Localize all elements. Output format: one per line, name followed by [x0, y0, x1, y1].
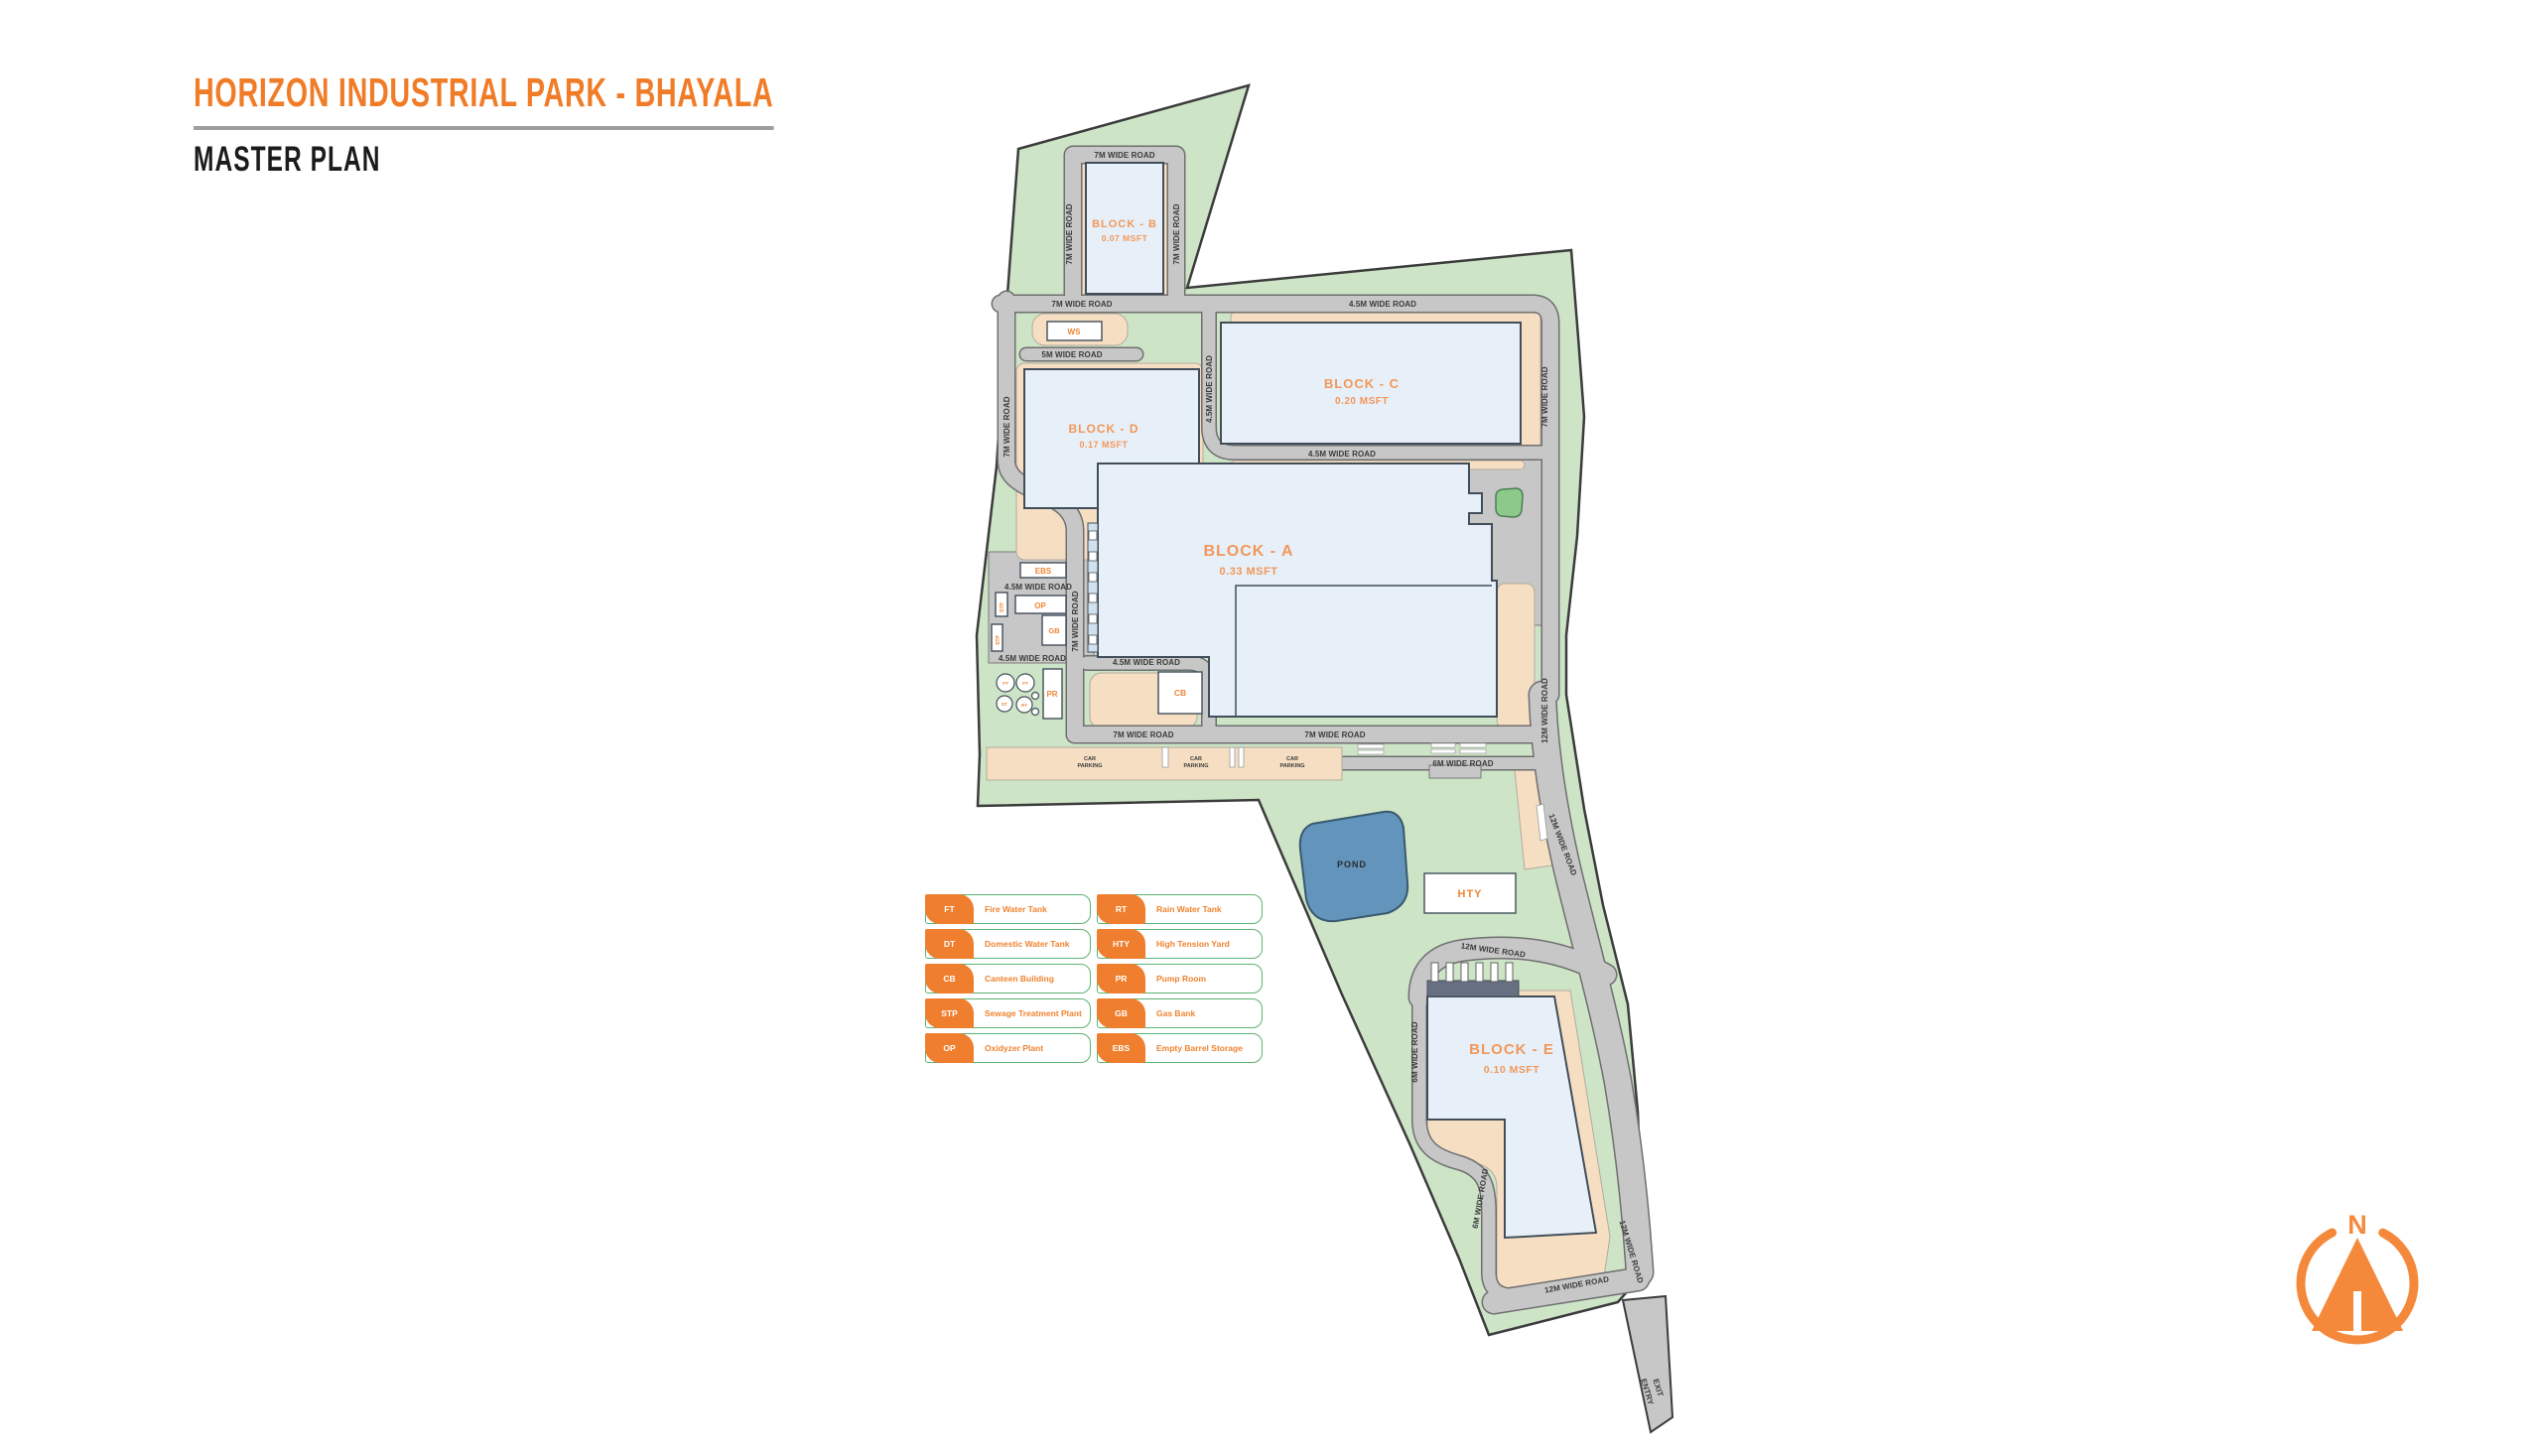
block-c-name: BLOCK - C [1324, 376, 1400, 391]
road-label: 5M WIDE ROAD [1041, 350, 1102, 359]
site-plan-map: BLOCK - A 0.33 MSFT BLOCK - B 0.07 MSFT … [0, 0, 2541, 1456]
small-tank-1 [1032, 693, 1039, 700]
dt-label: DT [1002, 702, 1007, 707]
compass-north-label: N [2347, 1210, 2367, 1240]
road-label: 7M WIDE ROAD [1540, 366, 1549, 427]
road-label: 7M WIDE ROAD [1304, 730, 1365, 739]
road-label: 7M WIDE ROAD [1172, 203, 1181, 264]
north-arrow-icon [2312, 1238, 2403, 1331]
hty-label: HTY [1458, 888, 1483, 900]
small-tank-2 [1032, 709, 1039, 716]
block-a-dock-strip [1088, 523, 1098, 652]
road-label: 7M WIDE ROAD [1113, 730, 1173, 739]
gb-label: GB [1048, 626, 1060, 635]
op-label: OP [1034, 601, 1046, 610]
car-parking-label: CAR [1190, 756, 1202, 762]
road-label: 4.5M WIDE ROAD [1004, 583, 1072, 592]
car-parking-label: PARKING [1280, 763, 1305, 769]
ws-label: WS [1068, 328, 1082, 336]
road-label: 12M WIDE ROAD [1540, 678, 1549, 743]
road-label: 7M WIDE ROAD [1051, 300, 1112, 309]
ft-label-1: FT [1003, 681, 1008, 686]
car-parking-label: CAR [1286, 756, 1298, 762]
road-label: 6M WIDE ROAD [1432, 759, 1493, 768]
ft-label-2: FT [1022, 681, 1028, 686]
block-b-name: BLOCK - B [1092, 218, 1157, 230]
block-c-area: 0.20 MSFT [1335, 396, 1389, 407]
stp-label-1: STP [1000, 601, 1005, 611]
road-label: 4.5M WIDE ROAD [1205, 355, 1214, 423]
road-label: 4.5M WIDE ROAD [1308, 450, 1376, 459]
car-parking-label: PARKING [1184, 763, 1209, 769]
stp-label-2: STP [996, 634, 1002, 644]
block-d-name: BLOCK - D [1069, 422, 1139, 436]
block-a-name: BLOCK - A [1203, 543, 1293, 560]
block-d-area: 0.17 MSFT [1079, 440, 1128, 450]
master-plan-page: HORIZON INDUSTRIAL PARK - BHAYALA MASTER… [0, 0, 2541, 1456]
block-b-area: 0.07 MSFT [1102, 233, 1148, 243]
landscape-patch [1496, 488, 1523, 517]
road-label: 7M WIDE ROAD [1094, 151, 1154, 160]
north-compass: N [2301, 1210, 2414, 1340]
entry-road-tail [1623, 1296, 1672, 1432]
road-label: 7M WIDE ROAD [1065, 203, 1074, 264]
block-e-area: 0.10 MSFT [1484, 1064, 1540, 1076]
pr-label: PR [1046, 690, 1057, 699]
road-label: 4.5M WIDE ROAD [1349, 300, 1416, 309]
road-label: 7M WIDE ROAD [1071, 591, 1080, 651]
block-e-name: BLOCK - E [1469, 1041, 1554, 1058]
road-label: 7M WIDE ROAD [1003, 396, 1011, 457]
pond-label: POND [1337, 860, 1367, 869]
block-a-area: 0.33 MSFT [1220, 566, 1278, 578]
cb-label: CB [1174, 688, 1186, 698]
block-e-dock-band [1427, 981, 1519, 996]
car-parking-label: PARKING [1078, 763, 1103, 769]
road-label: 4.5M WIDE ROAD [999, 654, 1066, 663]
ebs-label: EBS [1035, 567, 1052, 576]
road-label: 4.5M WIDE ROAD [1113, 658, 1180, 667]
rt-label: RT [1021, 703, 1027, 708]
car-parking-label: CAR [1084, 756, 1096, 762]
road-label: 6M WIDE ROAD [1410, 1021, 1419, 1082]
